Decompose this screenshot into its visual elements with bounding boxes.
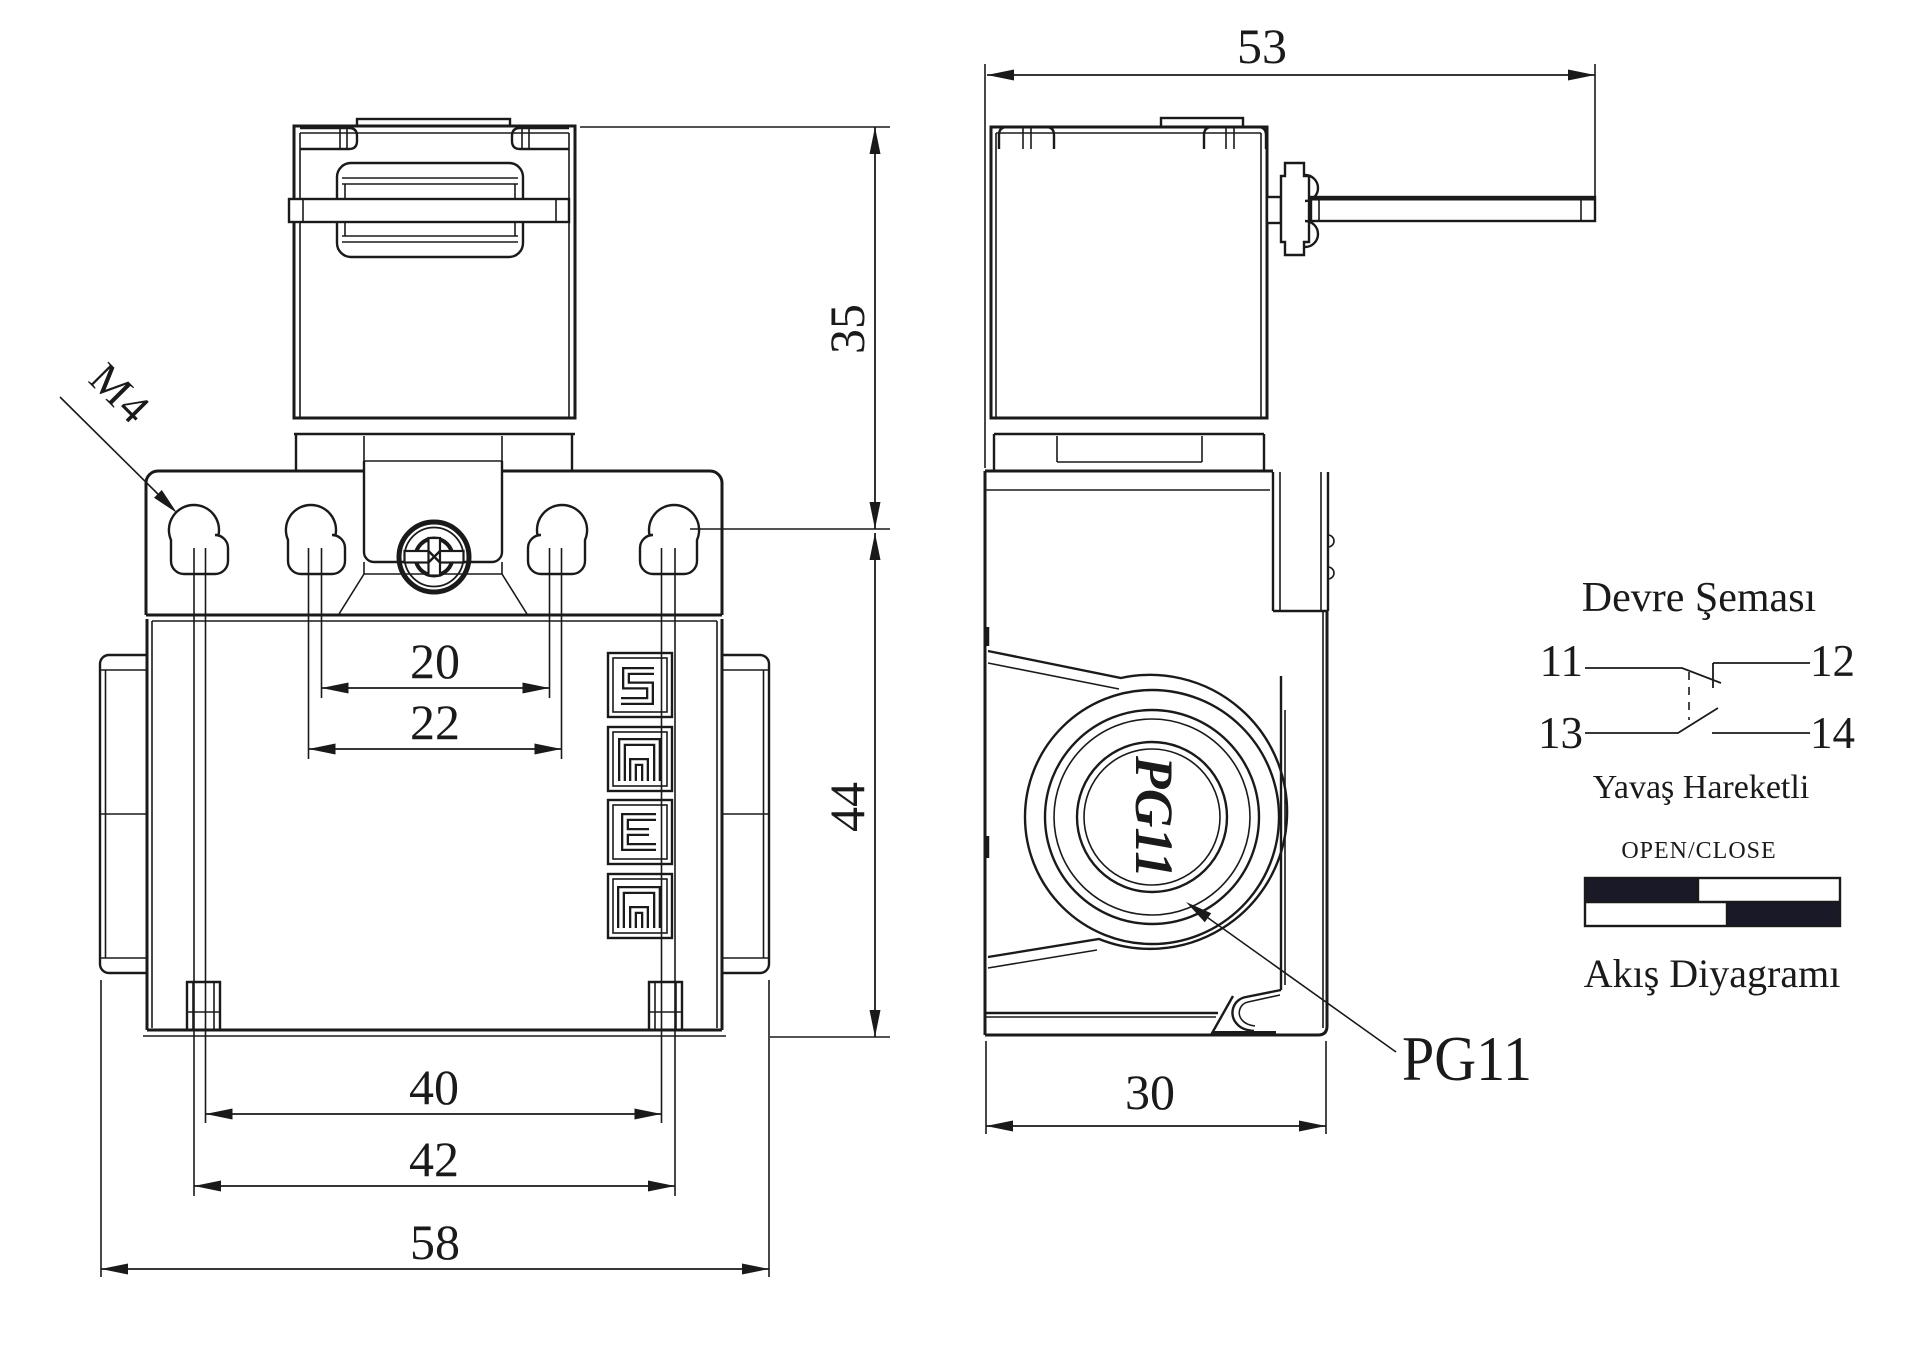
svg-text:14: 14 <box>1810 708 1855 758</box>
svg-text:11: 11 <box>1540 636 1583 686</box>
svg-text:Akış Diyagramı: Akış Diyagramı <box>1584 951 1841 996</box>
svg-text:Yavaş Hareketli: Yavaş Hareketli <box>1593 769 1810 806</box>
svg-text:12: 12 <box>1810 636 1855 686</box>
svg-text:30: 30 <box>1125 1064 1175 1120</box>
svg-text:44: 44 <box>819 782 875 832</box>
svg-text:20: 20 <box>410 633 460 689</box>
svg-text:13: 13 <box>1538 708 1583 758</box>
svg-text:53: 53 <box>1237 18 1287 74</box>
svg-text:Devre Şeması: Devre Şeması <box>1582 575 1816 621</box>
svg-text:35: 35 <box>819 304 875 354</box>
svg-text:58: 58 <box>410 1214 460 1270</box>
svg-text:PG11: PG11 <box>1124 755 1184 878</box>
svg-text:42: 42 <box>409 1131 459 1187</box>
svg-text:22: 22 <box>410 694 460 750</box>
svg-text:OPEN/CLOSE: OPEN/CLOSE <box>1621 838 1776 864</box>
svg-text:PG11: PG11 <box>1402 1023 1532 1094</box>
svg-text:40: 40 <box>409 1059 459 1115</box>
